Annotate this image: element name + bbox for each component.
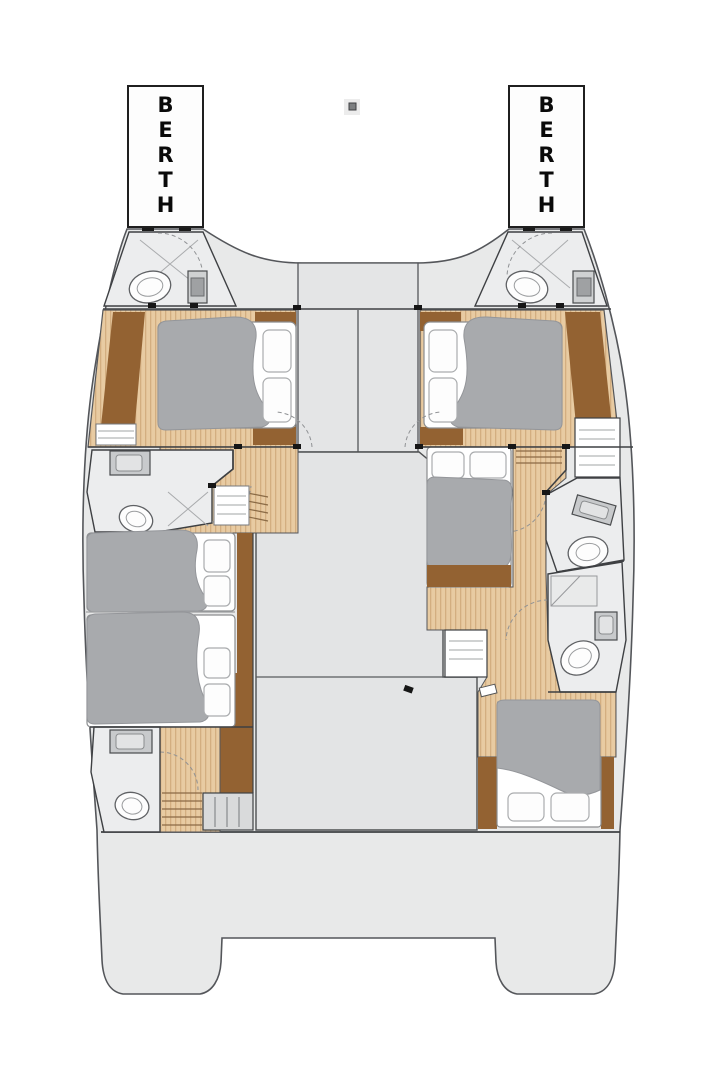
door-jamb [234,444,242,449]
port-berth-text: BERTH [154,93,176,218]
pillow [429,330,457,372]
sink-basin [191,278,204,296]
duvet [450,317,562,430]
starboard-aft-bathroom [548,562,626,692]
door-jamb [414,305,422,310]
door-jamb [293,305,301,310]
duvet [87,530,207,612]
wardrobe-trim [601,757,614,829]
pillow [508,793,544,821]
duvet [427,477,512,568]
wardrobe-trim [237,533,253,673]
starboard-berth-label: BERTH [508,85,585,228]
duvet [87,612,209,724]
port-berth-label: BERTH [127,85,204,228]
deck-fitting-marker [349,103,356,110]
cabinet [445,630,487,677]
pillow [263,378,291,422]
pillow [263,330,291,372]
door-jamb [562,444,570,449]
bathroom-floor [87,450,233,532]
sink-basin [116,455,142,471]
cabinet-trim [420,427,463,445]
dresser [96,424,136,445]
sink-basin [577,278,591,296]
door-jamb [542,490,550,495]
wardrobe-trim [478,757,497,829]
pillow [470,452,506,478]
deck-plan-drawing [0,0,720,1080]
door-jamb [518,303,526,308]
sink-basin [116,734,144,749]
pillow [432,452,464,478]
pillow [204,576,230,606]
pillow [551,793,589,821]
bed-footboard [427,565,511,587]
door-jamb [293,444,301,449]
pillow [204,540,230,572]
cabinet [203,793,253,830]
pillow [204,648,230,678]
starboard-mid-cabin [427,447,512,587]
pillow [429,378,457,422]
door-jamb [190,303,198,308]
pillow [204,684,230,716]
duvet [158,317,270,430]
starboard-berth-text: BERTH [535,93,557,218]
port-aft-cabin [87,612,235,727]
door-jamb [556,303,564,308]
door-jamb [508,444,516,449]
door-jamb [208,483,216,488]
sink-basin [599,616,613,634]
cabinet-trim [253,427,296,445]
catamaran-deck-plan: BERTH BERTH [0,0,720,1080]
door-jamb [148,303,156,308]
door-jamb [415,444,423,449]
shower-pan [551,576,597,606]
